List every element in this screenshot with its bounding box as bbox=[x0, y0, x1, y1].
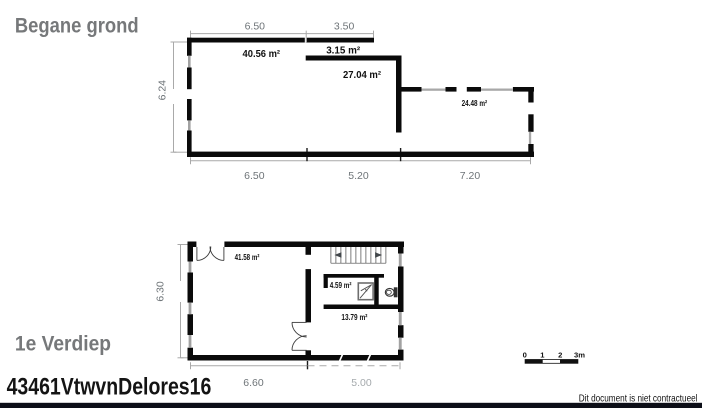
svg-text:0: 0 bbox=[523, 351, 527, 360]
svg-text:Dit document is niet contractu: Dit document is niet contractueel bbox=[579, 393, 698, 404]
svg-text:43461VtwvnDelores16: 43461VtwvnDelores16 bbox=[7, 374, 212, 401]
svg-text:41.58 m²: 41.58 m² bbox=[235, 252, 260, 262]
svg-text:3m: 3m bbox=[574, 351, 585, 360]
svg-text:27.04 m²: 27.04 m² bbox=[343, 69, 381, 81]
svg-text:3.15 m²: 3.15 m² bbox=[326, 45, 360, 57]
svg-text:Begane grond: Begane grond bbox=[15, 14, 139, 38]
svg-text:5.00: 5.00 bbox=[351, 378, 372, 389]
svg-text:6.24: 6.24 bbox=[158, 80, 169, 101]
svg-text:4.59 m²: 4.59 m² bbox=[330, 281, 352, 290]
svg-text:5.20: 5.20 bbox=[348, 171, 369, 182]
svg-text:6.50: 6.50 bbox=[245, 22, 266, 33]
svg-text:1e Verdiep: 1e Verdiep bbox=[15, 331, 111, 355]
svg-text:13.79 m²: 13.79 m² bbox=[341, 312, 367, 322]
svg-text:6.30: 6.30 bbox=[155, 281, 166, 302]
svg-text:6.60: 6.60 bbox=[243, 378, 264, 389]
svg-text:2: 2 bbox=[558, 351, 562, 360]
svg-text:3.50: 3.50 bbox=[334, 22, 355, 33]
svg-text:7.20: 7.20 bbox=[460, 171, 481, 182]
svg-text:24.48 m²: 24.48 m² bbox=[462, 99, 488, 108]
svg-text:6.50: 6.50 bbox=[244, 171, 265, 182]
svg-text:40.56 m²: 40.56 m² bbox=[243, 48, 281, 60]
